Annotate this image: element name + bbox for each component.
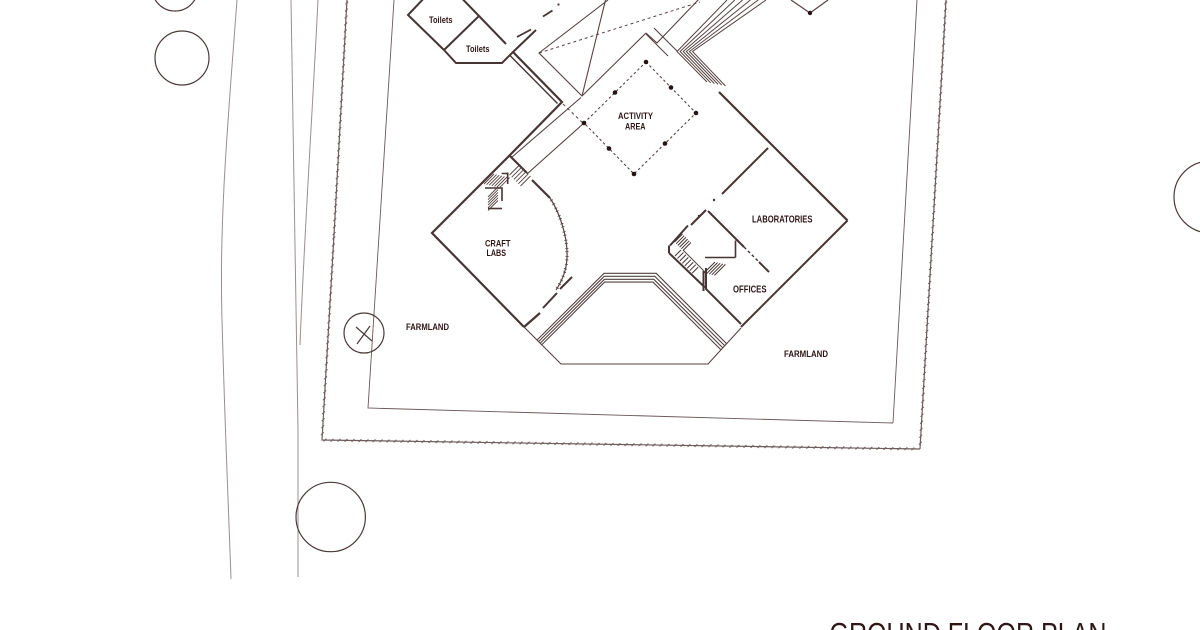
svg-text:CRAFT: CRAFT: [485, 239, 511, 249]
svg-text:AREA: AREA: [625, 122, 646, 132]
svg-text:OFFICES: OFFICES: [733, 285, 767, 296]
svg-text:FARMLAND: FARMLAND: [406, 322, 449, 332]
svg-text:Toilets: Toilets: [429, 15, 453, 26]
svg-text:LABORATORIES: LABORATORIES: [752, 215, 813, 226]
svg-text:ACTIVITY: ACTIVITY: [618, 111, 654, 121]
svg-text:LABS: LABS: [487, 248, 507, 258]
svg-text:GROUND FLOOR PLAN: GROUND FLOOR PLAN: [830, 617, 1107, 630]
svg-text:FARMLAND: FARMLAND: [784, 349, 828, 359]
svg-text:Toilets: Toilets: [466, 44, 490, 55]
